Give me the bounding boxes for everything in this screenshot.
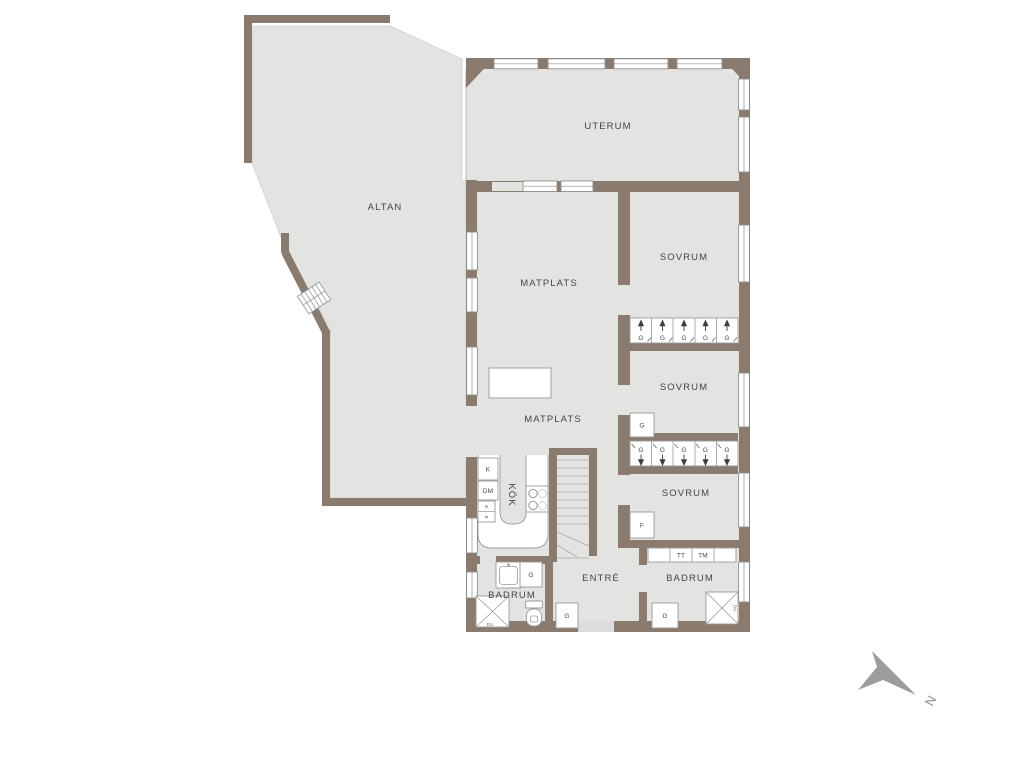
wardrobe-label: G (681, 335, 686, 342)
uterum-door-opening (492, 182, 523, 191)
wardrobe-bathroom-right: G (652, 603, 678, 628)
room-label-matplats-lower: MATPLATS (524, 414, 582, 425)
altan-terrace (244, 15, 466, 506)
altan-rail-top (244, 15, 390, 23)
washbasin (496, 562, 521, 588)
room-label-badrum-left: BADRUM (488, 590, 536, 601)
wardrobe-label: G (724, 447, 729, 454)
terrace-door-opening (464, 406, 479, 457)
window (548, 59, 605, 69)
toilet (526, 601, 543, 626)
north-arrow-icon (858, 651, 916, 695)
shower-label: DU (487, 622, 494, 627)
tumble-dryer-label: TT (677, 553, 685, 560)
dining-table (489, 368, 551, 398)
wardrobe-label: G (638, 335, 643, 342)
window (523, 181, 557, 192)
window (739, 562, 750, 602)
window (467, 232, 478, 270)
wardrobe-label: G (703, 335, 708, 342)
north-arrow: N (858, 651, 939, 708)
stair-wall-top (549, 448, 597, 455)
floor-plan: G G G G G G G G G G G F (0, 0, 1024, 768)
stair-wall-right (589, 448, 597, 556)
altan-rail-lower-left (322, 330, 330, 506)
entrance-door-opening (578, 621, 614, 632)
stove (526, 486, 548, 512)
wardrobe-label: G (564, 613, 569, 620)
window (467, 347, 478, 395)
window (467, 278, 478, 312)
wardrobe-sovrum2: G (630, 413, 654, 437)
window (739, 117, 750, 172)
window (614, 59, 668, 69)
wardrobe-label: G (681, 447, 686, 454)
room-label-sovrum-1: SOVRUM (660, 252, 708, 263)
window (467, 572, 478, 598)
wardrobe-row-sovrum1: G G G G G (630, 318, 738, 343)
window (467, 518, 478, 553)
altan-rail-bottom (322, 498, 466, 506)
shower-label: DU (733, 605, 738, 612)
room-label-matplats-upper: MATPLATS (520, 278, 578, 289)
altan-rail-left (244, 15, 252, 163)
window (561, 181, 593, 192)
altan-rail-stub (281, 233, 289, 253)
freezer-sovrum3: F (630, 512, 654, 538)
wardrobe-row-sovrum3: G G G G G (630, 441, 738, 466)
wardrobe-label: G (638, 447, 643, 454)
freezer-label: F (640, 523, 644, 530)
wardrobe-label: G (724, 335, 729, 342)
wardrobe-label: G (528, 572, 533, 579)
laundry-counter: TT TM (648, 548, 736, 562)
wardrobe-label: G (660, 447, 665, 454)
wardrobe-label: G (703, 447, 708, 454)
window (677, 59, 722, 69)
north-label: N (922, 693, 940, 708)
wardrobe-entry: G (556, 603, 578, 628)
washing-machine-label: TM (698, 553, 708, 560)
room-label-kok: KÖK (506, 483, 517, 506)
room-label-uterum: UTERUM (584, 121, 631, 132)
wardrobe-bathroom-left: G (520, 562, 542, 587)
room-label-sovrum-2: SOVRUM (660, 382, 708, 393)
floor-plan-page: G G G G G G G G G G G F (0, 0, 1024, 768)
wardrobe-label: G (639, 423, 644, 430)
room-label-badrum-right: BADRUM (666, 573, 714, 584)
kitchen-sink (478, 501, 495, 522)
wardrobe-label: G (662, 613, 667, 620)
shower-right: DU (706, 592, 738, 624)
fridge: K (478, 458, 498, 480)
dishwasher-label: DM (483, 488, 494, 495)
fridge-label: K (486, 467, 491, 474)
window (739, 225, 750, 282)
window (739, 79, 750, 110)
room-label-altan: ALTAN (368, 202, 403, 213)
wardrobe-label: G (660, 335, 665, 342)
window (739, 373, 750, 427)
room-label-entre: ENTRÉ (582, 573, 620, 584)
room-label-sovrum-3: SOVRUM (662, 488, 710, 499)
stair-wall-left (549, 448, 557, 562)
window (494, 59, 538, 69)
window (739, 473, 750, 527)
dishwasher: DM (478, 481, 498, 500)
